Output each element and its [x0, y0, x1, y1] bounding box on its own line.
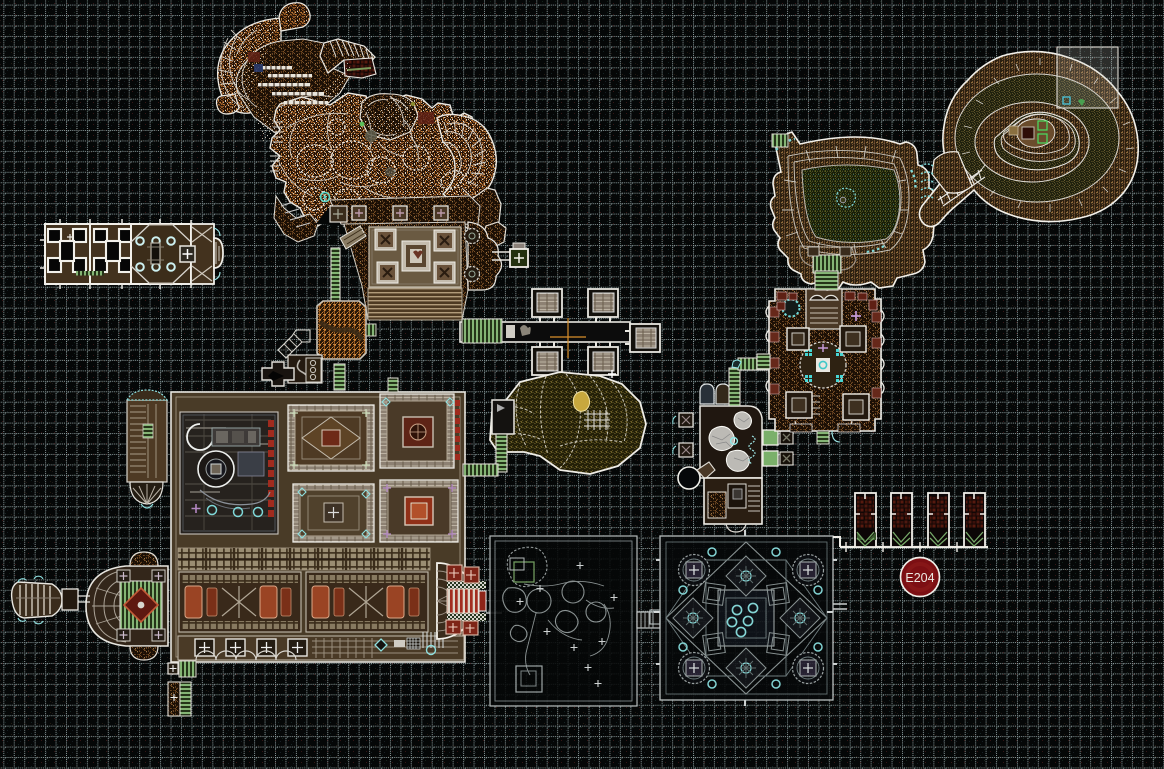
svg-text:E204: E204	[905, 571, 934, 585]
